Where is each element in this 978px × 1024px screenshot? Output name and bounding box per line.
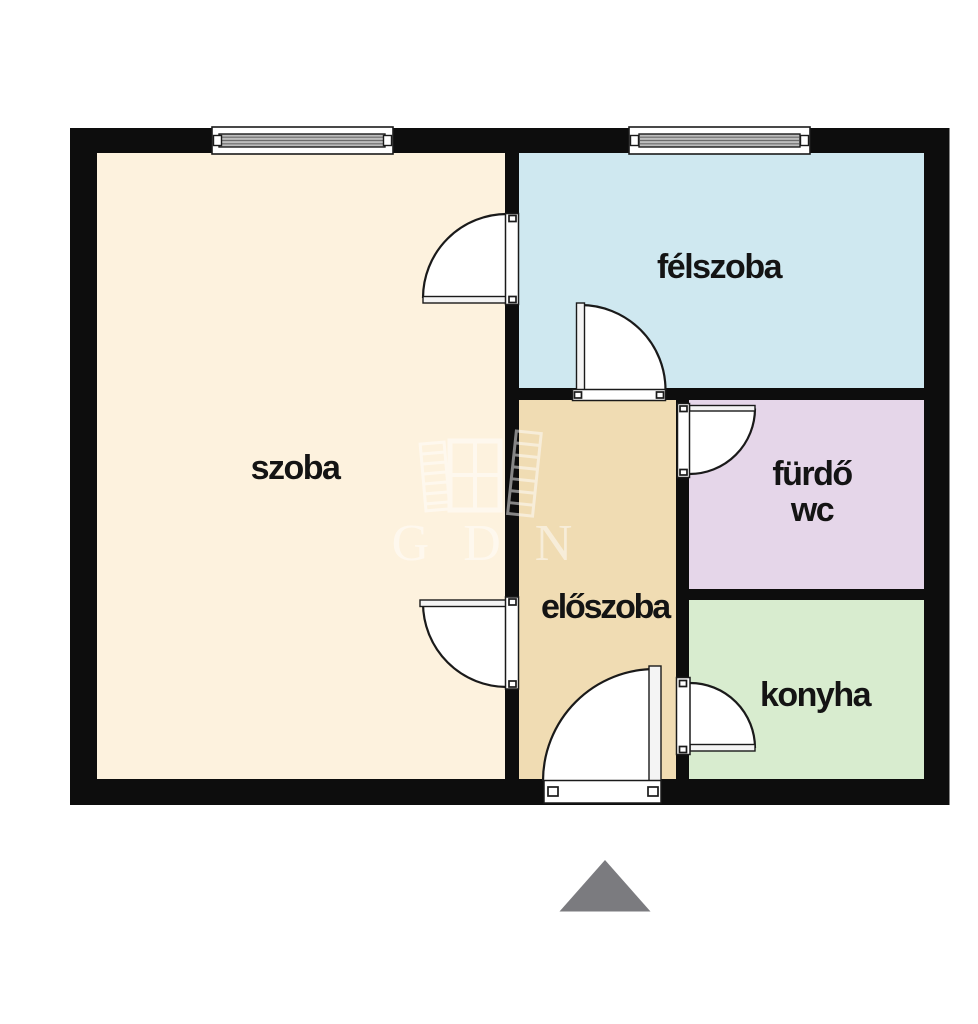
svg-text:konyha: konyha bbox=[760, 676, 873, 714]
svg-text:GDN: GDN bbox=[392, 515, 607, 572]
svg-text:előszoba: előszoba bbox=[541, 588, 672, 626]
svg-text:fürdő: fürdő bbox=[772, 455, 852, 493]
svg-text:szoba: szoba bbox=[251, 449, 342, 487]
svg-text:wc: wc bbox=[790, 491, 834, 529]
svg-text:félszoba: félszoba bbox=[657, 248, 784, 286]
